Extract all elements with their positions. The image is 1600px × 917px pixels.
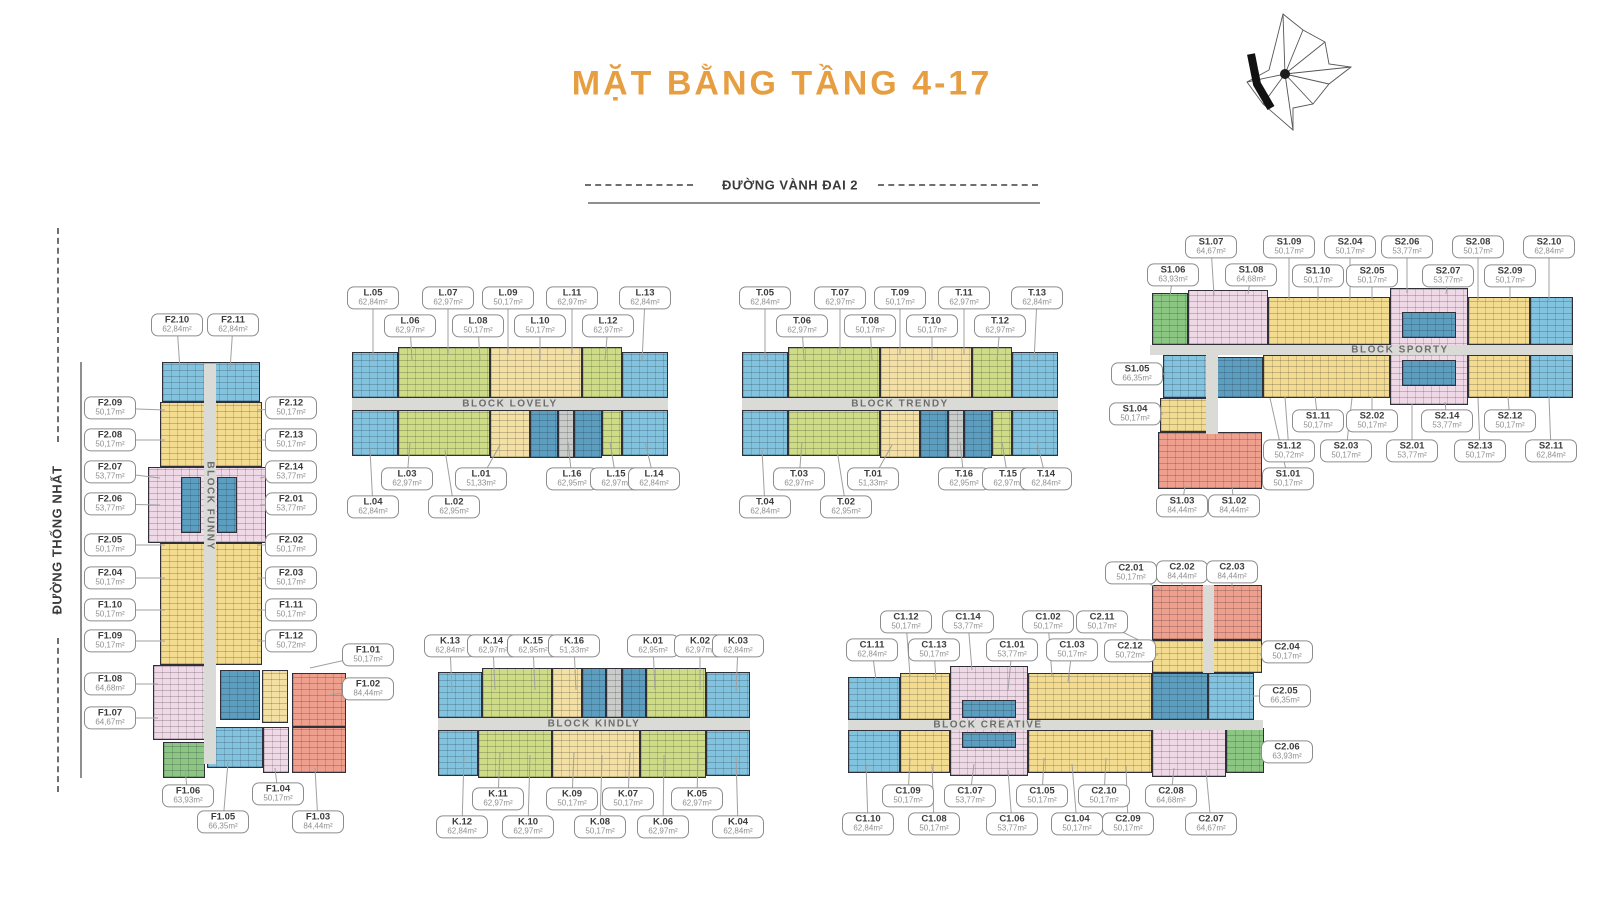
unit-label: S1.0150,17m²: [1262, 467, 1314, 490]
unit-label: C2.1050,17m²: [1078, 784, 1130, 807]
unit-label: F2.0450,17m²: [84, 566, 136, 589]
unit-label: C1.0153,77m²: [986, 638, 1038, 661]
unit-label: L.0151,33m²: [455, 467, 507, 490]
unit-size: 50,17m²: [269, 546, 313, 555]
unit-area: [848, 730, 900, 773]
unit-size: 50,17m²: [269, 409, 313, 418]
unit-size: 50,17m²: [878, 299, 922, 308]
unit-label: S2.0653,77m²: [1381, 235, 1433, 258]
unit-size: 62,97m²: [550, 299, 594, 308]
unit-label: L.1462,84m²: [628, 467, 680, 490]
unit-label: K.1062,97m²: [502, 815, 554, 838]
unit-size: 53,77m²: [88, 473, 132, 482]
unit-label: S2.1162,84m²: [1525, 439, 1577, 462]
unit-area: [962, 732, 1016, 748]
unit-area: [1158, 432, 1262, 489]
unit-label: F1.1150,17m²: [265, 598, 317, 621]
unit-size: 50,17m²: [1350, 422, 1394, 431]
unit-area: [1028, 730, 1152, 773]
unit-area: [646, 668, 706, 718]
unit-size: 62,97m²: [426, 299, 470, 308]
unit-area: [1012, 410, 1058, 456]
unit-label: L.1362,84m²: [619, 286, 671, 309]
unit-label: C2.0450,17m²: [1261, 640, 1313, 663]
unit-size: 50,17m²: [346, 656, 390, 665]
unit-size: 50,17m²: [88, 409, 132, 418]
block-name: BLOCK FUNNY: [205, 461, 216, 550]
unit-label: F2.1453,77m²: [265, 460, 317, 483]
unit-area: [1402, 312, 1456, 338]
page-title: MẶT BẰNG TẦNG 4-17: [572, 65, 992, 104]
unit-label: F2.1350,17m²: [265, 428, 317, 451]
unit-label: L.0662,97m²: [384, 314, 436, 337]
unit-label: F1.1050,17m²: [84, 598, 136, 621]
unit-size: 50,17m²: [886, 797, 930, 806]
unit-label: S1.0663,93m²: [1147, 263, 1199, 286]
unit-size: 51,33m²: [552, 647, 596, 656]
unit-label: C2.0150,17m²: [1105, 561, 1157, 584]
unit-label: C1.1250,17m²: [880, 610, 932, 633]
unit-area: [920, 410, 948, 458]
unit-label: T.0850,17m²: [844, 314, 896, 337]
unit-label: T.0362,97m²: [773, 467, 825, 490]
unit-size: 50,17m²: [606, 800, 650, 809]
unit-area: [1012, 352, 1058, 398]
unit-label: F1.1250,72m²: [265, 629, 317, 652]
unit-size: 62,97m²: [476, 800, 520, 809]
unit-area: [220, 670, 260, 720]
unit-label: C2.1250,72m²: [1104, 639, 1156, 662]
unit-label: K.1651,33m²: [548, 634, 600, 657]
unit-size: 64,67m²: [1189, 248, 1233, 257]
unit-size: 62,84m²: [846, 825, 890, 834]
unit-size: 62,84m²: [743, 508, 787, 517]
unit-label: C2.0950,17m²: [1102, 812, 1154, 835]
corridor: [1206, 352, 1218, 434]
unit-area: [490, 410, 530, 458]
unit-size: 66,35m²: [1115, 375, 1159, 384]
compass-icon: [1225, 12, 1355, 137]
unit-size: 53,77m²: [948, 797, 992, 806]
unit-area: [1160, 398, 1208, 432]
unit-label: L.0762,97m²: [422, 286, 474, 309]
unit-size: 62,84m²: [1529, 452, 1573, 461]
unit-label: F1.0950,17m²: [84, 629, 136, 652]
unit-label: S2.1350,17m²: [1454, 439, 1506, 462]
corridor: [1203, 585, 1214, 673]
unit-size: 50,17m²: [88, 611, 132, 620]
unit-size: 50,17m²: [269, 579, 313, 588]
unit-label: K.0850,17m²: [574, 815, 626, 838]
unit-label: S2.1250,17m²: [1484, 409, 1536, 432]
unit-label: S2.0550,17m²: [1346, 264, 1398, 287]
unit-size: 50,17m²: [1456, 248, 1500, 257]
unit-label: T.1050,17m²: [906, 314, 958, 337]
unit-size: 63,93m²: [1151, 276, 1195, 285]
unit-size: 53,77m²: [1385, 248, 1429, 257]
unit-label: C1.0250,17m²: [1022, 610, 1074, 633]
unit-label: L.0562,84m²: [347, 286, 399, 309]
unit-label: C1.0850,17m²: [908, 812, 960, 835]
unit-size: 50,17m²: [269, 441, 313, 450]
unit-label: K.1262,84m²: [436, 815, 488, 838]
unit-size: 53,77m²: [88, 505, 132, 514]
unit-size: 62,84m²: [211, 326, 255, 335]
unit-size: 64,67m²: [88, 719, 132, 728]
unit-area: [992, 410, 1012, 456]
unit-area: [292, 727, 346, 773]
unit-label: S2.1453,77m²: [1421, 409, 1473, 432]
unit-size: 62,84m²: [743, 299, 787, 308]
unit-size: 50,17m²: [88, 546, 132, 555]
unit-size: 50,17m²: [912, 651, 956, 660]
unit-label: L.1262,97m²: [582, 314, 634, 337]
unit-size: 84,44m²: [1212, 507, 1256, 516]
unit-area: [263, 727, 289, 773]
unit-label: S1.1250,72m²: [1263, 439, 1315, 462]
unit-size: 62,97m²: [942, 299, 986, 308]
unit-size: 51,33m²: [851, 480, 895, 489]
unit-area: [972, 347, 1012, 398]
unit-label: T.0562,84m²: [739, 286, 791, 309]
unit-area: [398, 410, 490, 456]
unit-area: [742, 410, 788, 456]
unit-label: T.0262,95m²: [820, 495, 872, 518]
unit-size: 62,84m²: [428, 647, 472, 656]
unit-size: 84,44m²: [1160, 507, 1204, 516]
unit-label: C1.0653,77m²: [986, 812, 1038, 835]
unit-label: S1.0764,67m²: [1185, 235, 1237, 258]
unit-label: F2.0350,17m²: [265, 566, 317, 589]
block-name: BLOCK SPORTY: [1351, 345, 1448, 356]
unit-label: L.0262,95m²: [428, 495, 480, 518]
unit-area: [880, 410, 920, 458]
unit-area: [1152, 673, 1208, 720]
unit-size: 62,84m²: [1527, 248, 1571, 257]
unit-area: [478, 730, 552, 778]
unit-area: [1530, 297, 1573, 345]
unit-area: [217, 477, 237, 533]
unit-area: [706, 730, 750, 776]
road-dash-upper: [57, 228, 59, 442]
unit-area: [1468, 297, 1530, 345]
unit-area: [1268, 297, 1390, 345]
unit-area: [1163, 355, 1207, 398]
unit-size: 50,17m²: [88, 579, 132, 588]
unit-size: 66,35m²: [201, 823, 245, 832]
unit-area: [1028, 673, 1152, 720]
unit-label: F2.0753,77m²: [84, 460, 136, 483]
unit-label: S2.0753,77m²: [1422, 264, 1474, 287]
unit-size: 62,97m²: [818, 299, 862, 308]
unit-label: F2.0250,17m²: [265, 533, 317, 556]
unit-label: T.1262,97m²: [974, 314, 1026, 337]
unit-size: 50,72m²: [269, 642, 313, 651]
unit-size: 50,17m²: [1109, 574, 1153, 583]
unit-size: 62,97m²: [780, 327, 824, 336]
unit-area: [163, 742, 205, 778]
unit-label: C1.1062,84m²: [842, 812, 894, 835]
unit-label: T.0950,17m²: [874, 286, 926, 309]
unit-size: 62,84m²: [1015, 299, 1059, 308]
unit-label: K.0362,84m²: [712, 634, 764, 657]
unit-label: S1.0384,44m²: [1156, 494, 1208, 517]
unit-size: 63,93m²: [166, 797, 210, 806]
unit-size: 50,17m²: [1296, 422, 1340, 431]
unit-size: 62,84m²: [716, 828, 760, 837]
road-edge-top: [588, 202, 1040, 204]
unit-label: C2.0864,68m²: [1145, 784, 1197, 807]
unit-label: S1.0950,17m²: [1263, 235, 1315, 258]
unit-label: K.0750,17m²: [602, 787, 654, 810]
unit-size: 62,84m²: [351, 299, 395, 308]
unit-label: F2.0653,77m²: [84, 492, 136, 515]
unit-area: [962, 700, 1016, 718]
unit-area: [602, 410, 622, 456]
unit-label: C1.0350,17m²: [1046, 638, 1098, 661]
unit-label: S2.0450,17m²: [1324, 235, 1376, 258]
unit-size: 50,72m²: [1108, 652, 1152, 661]
unit-label: S1.1050,17m²: [1292, 264, 1344, 287]
block-name: BLOCK KINDLY: [548, 719, 641, 730]
unit-size: 53,77m²: [1426, 277, 1470, 286]
unit-label: S2.0153,77m²: [1386, 439, 1438, 462]
unit-area: [1215, 357, 1263, 398]
unit-size: 64,67m²: [1189, 825, 1233, 834]
unit-area: [948, 410, 964, 458]
unit-size: 50,17m²: [1055, 825, 1099, 834]
unit-size: 50,17m²: [1050, 651, 1094, 660]
corridor: [848, 720, 1263, 730]
unit-area: [1226, 728, 1264, 773]
unit-label: F2.0550,17m²: [84, 533, 136, 556]
unit-area: [438, 730, 478, 776]
unit-area: [1402, 360, 1456, 386]
unit-area: [398, 347, 490, 398]
unit-label: S2.0250,17m²: [1346, 409, 1398, 432]
unit-size: 62,97m²: [777, 480, 821, 489]
unit-size: 53,77m²: [990, 825, 1034, 834]
unit-label: S2.0850,17m²: [1452, 235, 1504, 258]
unit-label: L.1050,17m²: [514, 314, 566, 337]
unit-area: [622, 410, 668, 456]
unit-area: [292, 673, 346, 727]
unit-area: [582, 668, 606, 718]
unit-label: S1.0566,35m²: [1111, 362, 1163, 385]
unit-size: 50,17m²: [1488, 277, 1532, 286]
unit-size: 50,17m²: [1324, 452, 1368, 461]
unit-size: 62,84m²: [850, 651, 894, 660]
unit-area: [552, 668, 582, 718]
unit-area: [742, 352, 788, 398]
unit-label: F2.0153,77m²: [265, 492, 317, 515]
unit-size: 62,97m²: [675, 800, 719, 809]
unit-label: T.1462,84m²: [1020, 467, 1072, 490]
unit-size: 50,17m²: [1328, 248, 1372, 257]
unit-area: [490, 347, 582, 398]
unit-label: F2.0950,17m²: [84, 396, 136, 419]
unit-label: S1.0284,44m²: [1208, 494, 1260, 517]
unit-size: 50,17m²: [1080, 623, 1124, 632]
unit-size: 62,95m²: [432, 508, 476, 517]
unit-label: T.0462,84m²: [739, 495, 791, 518]
unit-size: 63,93m²: [1265, 753, 1309, 762]
unit-label: S2.0950,17m²: [1484, 264, 1536, 287]
unit-label: F1.0150,17m²: [342, 643, 394, 666]
unit-area: [262, 670, 288, 723]
unit-size: 50,17m²: [1026, 623, 1070, 632]
unit-label: L.0950,17m²: [482, 286, 534, 309]
unit-area: [706, 672, 750, 718]
unit-area: [1188, 290, 1268, 345]
unit-size: 62,84m²: [1024, 480, 1068, 489]
unit-area: [558, 410, 574, 458]
unit-area: [1530, 355, 1573, 398]
unit-label: K.0662,97m²: [637, 815, 689, 838]
unit-size: 64,68m²: [88, 685, 132, 694]
unit-size: 50,17m²: [1082, 797, 1126, 806]
unit-size: 64,68m²: [1149, 797, 1193, 806]
unit-size: 62,97m²: [506, 828, 550, 837]
unit-label: C1.1453,77m²: [942, 610, 994, 633]
unit-size: 62,97m²: [586, 327, 630, 336]
floor-plan-canvas: MẶT BẰNG TẦNG 4-17 ĐƯỜNG VÀNH ĐAI 2 ĐƯỜN…: [0, 0, 1600, 917]
unit-size: 50,17m²: [1350, 277, 1394, 286]
unit-area: [482, 668, 552, 718]
unit-label: C2.0384,44m²: [1206, 560, 1258, 583]
unit-label: L.0462,84m²: [347, 495, 399, 518]
block-name: BLOCK TRENDY: [851, 399, 948, 410]
unit-area: [153, 665, 207, 740]
unit-label: K.0462,84m²: [712, 815, 764, 838]
unit-label: K.0562,97m²: [671, 787, 723, 810]
unit-size: 62,95m²: [824, 508, 868, 517]
unit-area: [622, 668, 646, 718]
unit-size: 50,17m²: [1266, 480, 1310, 489]
unit-size: 66,35m²: [1263, 697, 1307, 706]
unit-label: S1.0450,17m²: [1109, 402, 1161, 425]
unit-size: 53,77m²: [269, 505, 313, 514]
unit-size: 50,17m²: [912, 825, 956, 834]
unit-area: [181, 477, 201, 533]
road-edge-left: [80, 362, 82, 778]
unit-size: 50,17m²: [848, 327, 892, 336]
unit-label: F1.0864,68m²: [84, 672, 136, 695]
unit-area: [1208, 673, 1254, 720]
unit-size: 50,17m²: [1265, 653, 1309, 662]
unit-label: L.1162,97m²: [546, 286, 598, 309]
unit-label: C1.1350,17m²: [908, 638, 960, 661]
unit-area: [964, 410, 992, 458]
unit-label: C1.0550,17m²: [1016, 784, 1068, 807]
unit-size: 50,17m²: [518, 327, 562, 336]
unit-size: 50,17m²: [1296, 277, 1340, 286]
unit-size: 62,95m²: [631, 647, 675, 656]
unit-size: 50,17m²: [1106, 825, 1150, 834]
road-dash-left: [585, 184, 693, 186]
unit-size: 51,33m²: [459, 480, 503, 489]
unit-label: S1.1150,17m²: [1292, 409, 1344, 432]
unit-size: 62,84m²: [351, 508, 395, 517]
unit-area: [606, 668, 622, 718]
unit-label: F2.0850,17m²: [84, 428, 136, 451]
unit-area: [900, 673, 950, 720]
unit-area: [640, 730, 706, 778]
unit-size: 50,17m²: [1458, 452, 1502, 461]
unit-area: [622, 352, 668, 398]
unit-size: 53,77m²: [1390, 452, 1434, 461]
unit-size: 50,17m²: [884, 623, 928, 632]
unit-area: [1152, 727, 1226, 777]
unit-size: 62,84m²: [632, 480, 676, 489]
unit-label: F2.1062,84m²: [151, 313, 203, 336]
unit-size: 50,17m²: [456, 327, 500, 336]
unit-label: F1.0663,93m²: [162, 784, 214, 807]
unit-size: 50,17m²: [88, 441, 132, 450]
unit-size: 50,17m²: [910, 327, 954, 336]
unit-size: 53,77m²: [990, 651, 1034, 660]
unit-label: F1.0764,67m²: [84, 706, 136, 729]
unit-label: F1.0284,44m²: [342, 677, 394, 700]
unit-area: [1152, 293, 1188, 345]
unit-size: 62,84m²: [716, 647, 760, 656]
unit-size: 62,97m²: [641, 828, 685, 837]
unit-area: [574, 410, 602, 458]
unit-size: 50,17m²: [256, 795, 300, 804]
unit-label: F2.1250,17m²: [265, 396, 317, 419]
road-label-top: ĐƯỜNG VÀNH ĐAI 2: [722, 178, 858, 193]
unit-size: 50,17m²: [1020, 797, 1064, 806]
corridor: [204, 364, 216, 764]
unit-size: 62,97m²: [978, 327, 1022, 336]
unit-label: T.0151,33m²: [847, 467, 899, 490]
road-label-left: ĐƯỜNG THỐNG NHẤT: [50, 465, 65, 614]
unit-size: 64,68m²: [1229, 276, 1273, 285]
unit-size: 62,84m²: [623, 299, 667, 308]
unit-label: C1.1162,84m²: [846, 638, 898, 661]
unit-label: F1.0384,44m²: [292, 810, 344, 833]
unit-label: T.1362,84m²: [1011, 286, 1063, 309]
unit-size: 53,77m²: [1425, 422, 1469, 431]
unit-size: 62,95m²: [942, 480, 986, 489]
unit-label: S2.0350,17m²: [1320, 439, 1372, 462]
unit-size: 62,95m²: [550, 480, 594, 489]
unit-label: T.0662,97m²: [776, 314, 828, 337]
unit-area: [582, 347, 622, 398]
unit-area: [438, 672, 482, 718]
unit-size: 50,72m²: [1267, 452, 1311, 461]
unit-label: T.0762,97m²: [814, 286, 866, 309]
unit-label: C2.0284,44m²: [1156, 560, 1208, 583]
unit-size: 50,17m²: [486, 299, 530, 308]
unit-label: C2.1150,17m²: [1076, 610, 1128, 633]
unit-size: 62,97m²: [385, 480, 429, 489]
unit-size: 62,84m²: [440, 828, 484, 837]
unit-size: 50,17m²: [1113, 415, 1157, 424]
unit-area: [788, 410, 880, 456]
unit-size: 84,44m²: [1160, 573, 1204, 582]
unit-size: 50,17m²: [550, 800, 594, 809]
unit-area: [530, 410, 558, 458]
unit-size: 53,77m²: [946, 623, 990, 632]
unit-label: L.0850,17m²: [452, 314, 504, 337]
unit-size: 50,17m²: [269, 611, 313, 620]
unit-label: K.0950,17m²: [546, 787, 598, 810]
unit-area: [900, 730, 950, 773]
unit-label: C2.0764,67m²: [1185, 812, 1237, 835]
unit-label: C2.0566,35m²: [1259, 684, 1311, 707]
unit-label: F1.0566,35m²: [197, 810, 249, 833]
